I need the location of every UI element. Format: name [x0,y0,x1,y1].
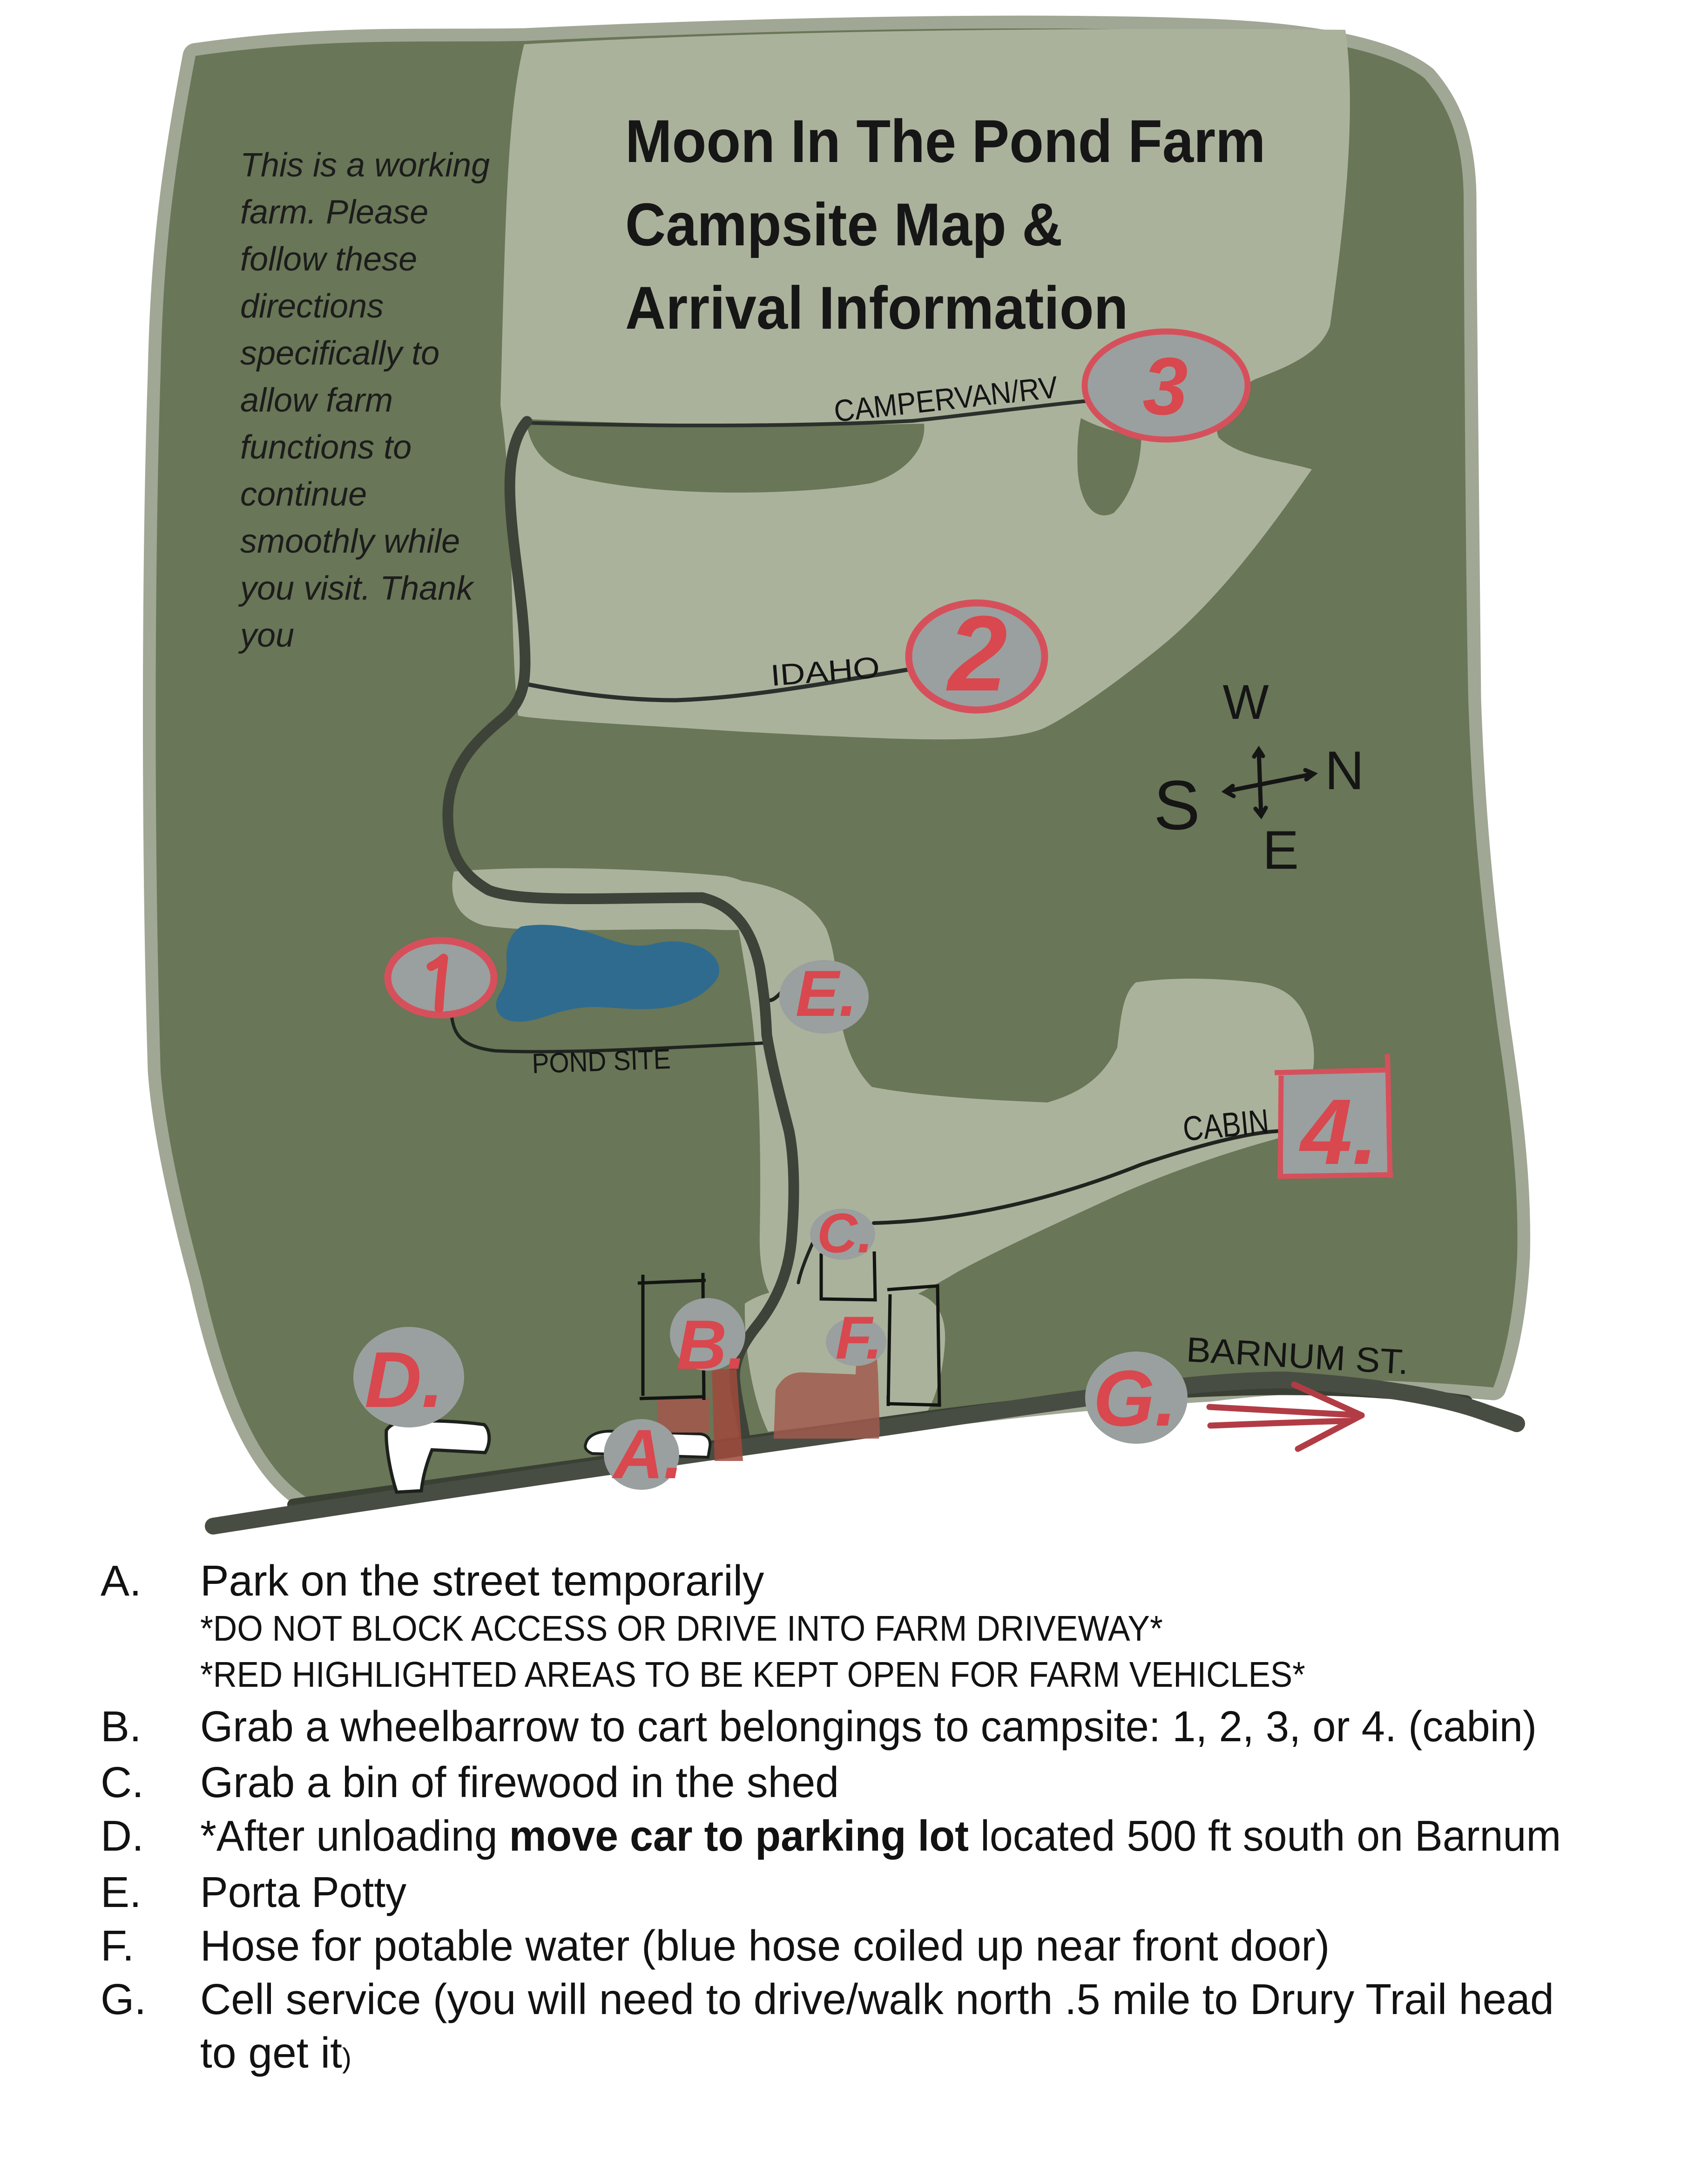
svg-text:CABIN: CABIN [1181,1102,1270,1148]
svg-text:E: E [1263,819,1299,880]
svg-text:G.: G. [1093,1354,1176,1443]
svg-text:POND SITE: POND SITE [531,1043,671,1079]
svg-text:F.: F. [835,1304,882,1372]
svg-text:S: S [1154,766,1200,844]
svg-text:E.: E. [796,957,857,1030]
svg-text:4.: 4. [1299,1080,1378,1184]
svg-text:A.: A. [611,1415,683,1493]
svg-text:D.: D. [365,1336,444,1424]
svg-text:2: 2 [946,594,1007,713]
svg-text:W: W [1222,675,1269,730]
svg-text:3: 3 [1142,341,1188,432]
svg-text:N: N [1325,740,1364,801]
svg-text:C.: C. [817,1202,873,1264]
svg-text:B.: B. [676,1305,746,1384]
